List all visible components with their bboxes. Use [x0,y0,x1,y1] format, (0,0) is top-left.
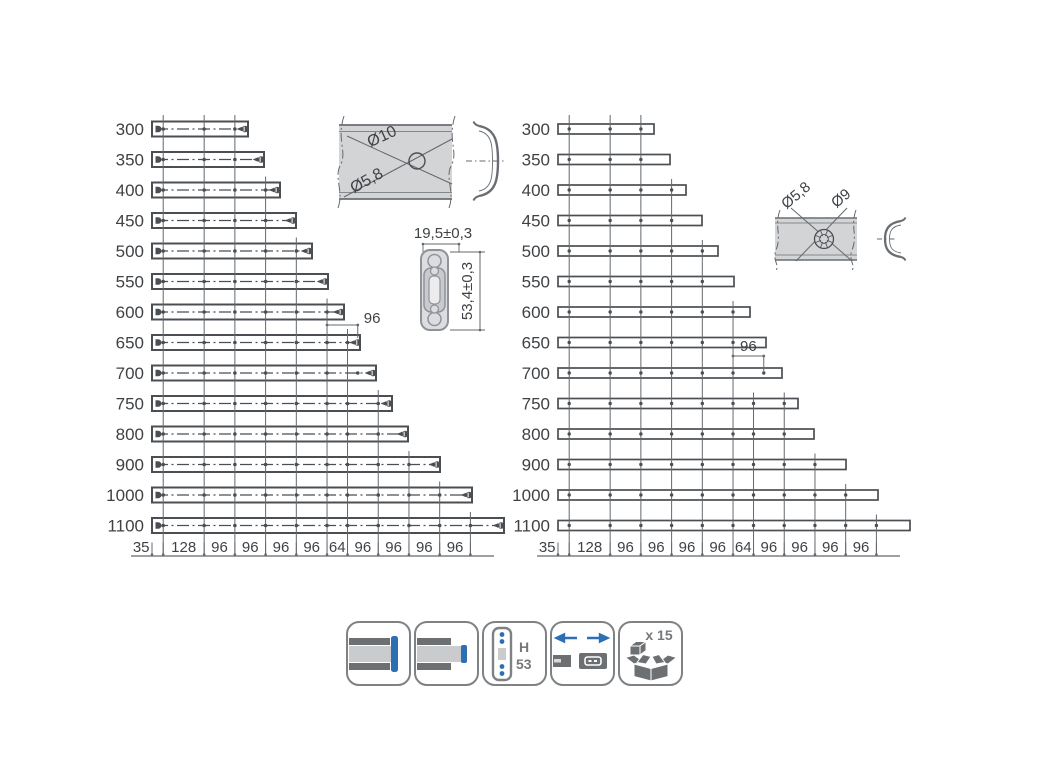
hole-dot [202,463,206,467]
length-label: 400 [522,181,550,200]
length-label: 600 [116,303,144,322]
hole-dot [783,493,786,496]
length-label: 700 [116,364,144,383]
length-label: 650 [522,334,550,353]
hole-dot [701,310,704,313]
length-label: 900 [116,456,144,475]
hole-dot [469,524,473,528]
hole-dot [325,402,329,406]
hole-dot [295,524,299,528]
hole-dot [608,371,611,374]
slide-bar-650 [558,338,766,348]
hole-dot [202,310,206,314]
hole-dot [264,493,268,497]
hole-dot [161,402,165,406]
hole-dot [608,310,611,313]
axis-label: 96 [273,539,290,556]
hole-dot [233,188,237,192]
hole-dot [295,402,299,406]
hole-dot [568,524,571,527]
hole-dot [295,432,299,436]
hole-dot [346,341,350,345]
hole-dot [731,432,734,435]
length-label: 550 [522,273,550,292]
hole-dot [701,249,704,252]
end-hole [386,400,393,407]
hole-dot [670,188,673,191]
hole-dot [639,432,642,435]
hole-dot [233,493,237,497]
hole-dot [670,493,673,496]
catalog-drawing-page: 3003504004505005506006507007508009001000… [0,0,1060,766]
length-label: 500 [522,242,550,261]
hole-dot [407,493,411,497]
hole-dot [568,249,571,252]
length-label: 600 [522,303,550,322]
hole-dot [407,463,411,467]
hole-dot [608,158,611,161]
length-label: 300 [116,120,144,139]
hole-dot [264,524,268,528]
hole-dot [568,219,571,222]
hole-dot [701,371,704,374]
hole-dot [295,310,299,314]
length-label: 800 [116,425,144,444]
hole-dot [202,524,206,528]
hole-dot [701,493,704,496]
hole-dot [701,402,704,405]
hole-dot [608,493,611,496]
slide-bar-400 [152,183,280,198]
length-label: 450 [522,212,550,231]
hole-dot [639,402,642,405]
hole-dot [568,371,571,374]
height-53-icon: H 53 [482,621,547,686]
length-label: 1000 [512,486,550,505]
length-label: 350 [116,151,144,170]
hole-dot [264,310,268,314]
hole-dot [202,371,206,375]
slide-bar-400 [558,185,686,195]
hole-dot [639,188,642,191]
hole-dot [639,310,642,313]
hole-dot [202,280,206,284]
profile-detail: 19,5±0,353,4±0,3 [414,225,485,331]
end-hole [322,278,329,285]
end-hole [498,522,505,529]
hole-dot [568,493,571,496]
hole-dot [233,402,237,406]
axis-label: 96 [416,539,433,556]
hole-dot [202,341,206,345]
length-label: 1100 [513,517,550,536]
hole-dot [264,341,268,345]
slide-bar-750 [558,399,798,409]
end-hole [242,126,249,133]
hole-dot [295,341,299,345]
hole-dot [568,158,571,161]
hole-dot [346,524,350,528]
hole-dot [264,188,268,192]
end-hole [354,339,361,346]
length-label: 650 [116,334,144,353]
hole-dot [325,463,329,467]
hole-dot [161,219,165,223]
hole-dot [376,524,380,528]
end-hole [338,309,345,316]
hole-dot [233,524,237,528]
slide-bar-800 [558,429,814,439]
hole-dot [438,524,442,528]
hole-dot [639,493,642,496]
end-hole [274,187,281,194]
hole-dot [233,432,237,436]
hole-dot [875,524,878,527]
end-hole [258,156,265,163]
length-label: 750 [116,395,144,414]
axis-label: 96 [679,539,696,556]
axis-label: 96 [853,539,870,556]
hole-dot [783,463,786,466]
length-label: 500 [116,242,144,261]
hole-dot [264,249,268,253]
hole-dot [202,188,206,192]
hole-dot [161,493,165,497]
partial-extension-icon [346,621,411,686]
hole-dot [701,341,704,344]
axis-label: 96 [355,539,372,556]
hole-dot [813,463,816,466]
length-label: 450 [116,212,144,231]
axis-label: 96 [791,539,808,556]
hole-dot [325,432,329,436]
hole-dot [752,524,755,527]
hole-dot [233,158,237,162]
hole-dot [731,493,734,496]
axis-label: 96 [822,539,839,556]
hole-dot [608,432,611,435]
hole-dot [376,493,380,497]
hole-dot [233,249,237,253]
hole-dot [701,524,704,527]
hole-dot [161,310,165,314]
hole-dot [161,341,165,345]
hole-dot [202,432,206,436]
hole-dot [608,341,611,344]
height-letter: H [519,639,529,655]
hole-dot [295,463,299,467]
slide-bar-600 [558,307,750,317]
hole-dot [813,493,816,496]
hole-detail-right: Ø5,8Ø9 [775,179,906,270]
hole-dot [161,127,165,131]
hole-dot [325,341,329,345]
hole-dot [844,493,847,496]
hole-dot [752,402,755,405]
hole-dot [608,188,611,191]
hole-dot [608,402,611,405]
hole-dot [639,249,642,252]
axis-label: 96 [211,539,228,556]
hole-dot [161,463,165,467]
hole-dot [813,524,816,527]
axis-label: 96 [617,539,634,556]
hole-dot [356,371,360,375]
length-label: 350 [522,151,550,170]
hole-dot [202,493,206,497]
axis-label: 96 [385,539,402,556]
hole-dot [202,158,206,162]
hole-dot [568,310,571,313]
hole-dot [376,402,380,406]
hole-dot [346,493,350,497]
hole-dot [376,463,380,467]
hole-dot [752,432,755,435]
hole-dot [670,280,673,283]
hole-dot [202,219,206,223]
end-hole [434,461,441,468]
hole-dot [762,371,765,374]
hole-dot [783,402,786,405]
hole-dot [264,463,268,467]
hole-dot [161,249,165,253]
length-label: 800 [522,425,550,444]
full-extension-icon [414,621,479,686]
hole-dot [161,188,165,192]
slide-bar-450 [558,216,702,226]
end-hole [370,370,377,377]
hole-dot [639,280,642,283]
width-dim-label: 19,5±0,3 [414,225,472,242]
hole-dot [670,219,673,222]
hole-dot [670,524,673,527]
hole-dot [731,463,734,466]
hole-dot [731,310,734,313]
quantity-label: x 15 [645,627,672,643]
hole-dot [844,524,847,527]
axis-label: 64 [735,539,752,556]
hole-dot [639,158,642,161]
hole-dot [325,371,329,375]
axis-label: 96 [242,539,259,556]
hole-dot [731,524,734,527]
axis-label: 128 [577,539,602,556]
length-label: 300 [522,120,550,139]
axis-label: 96 [648,539,665,556]
hole-dot [568,188,571,191]
hole-dot [346,432,350,436]
hole-dot [670,341,673,344]
height-dim-label: 53,4±0,3 [459,262,476,320]
hole-dot [670,402,673,405]
axis-label: 96 [761,539,778,556]
hole-dot [670,310,673,313]
hole-dot [295,371,299,375]
end-hole [466,492,473,499]
hole-dot [639,127,642,130]
hole-dot [670,432,673,435]
hole-dot [783,432,786,435]
hole-dot [608,524,611,527]
hole-dot [264,280,268,284]
hole-dot [670,249,673,252]
hole-dot [608,463,611,466]
hole-dot [346,402,350,406]
hole-dot [752,463,755,466]
length-label: 700 [522,364,550,383]
hole-dot [233,463,237,467]
hole-dot [161,158,165,162]
hole-dot [376,432,380,436]
hole-dot [701,432,704,435]
feature-icon-row: H 53 x 15 [346,621,683,686]
hole-dot [325,524,329,528]
hole-dot [568,127,571,130]
length-label: 400 [116,181,144,200]
hole-dot [233,219,237,223]
hole-dot [233,341,237,345]
end-hole [402,431,409,438]
hole-dot [264,432,268,436]
hole-dot [202,249,206,253]
axis-label: 96 [447,539,464,556]
hole-dot [295,493,299,497]
slide-bar-350 [558,155,670,165]
hole-dot [264,371,268,375]
hole-dot [731,341,734,344]
end-hole [306,248,313,255]
hole-dot [438,493,442,497]
hole-dot [568,402,571,405]
axis-label: 35 [539,539,556,556]
hole-dot [161,524,165,528]
hole-dot [233,280,237,284]
drawer-member-panel: 3003504004505005506006507007508009001000… [512,115,910,556]
hole-detail-top: Ø10Ø5,8 [338,116,504,208]
hole-dot [783,524,786,527]
hole-dot [233,127,237,131]
axis-label: 35 [133,539,150,556]
hole-dot [568,432,571,435]
hole-dot [161,371,165,375]
hole-dot [639,219,642,222]
hole-dot [608,127,611,130]
hole-dot [701,280,704,283]
slide-bar-550 [558,277,734,287]
hole-dot [639,524,642,527]
hole-dot [608,249,611,252]
length-label: 1000 [106,486,144,505]
hole-dot [568,280,571,283]
hole-dot [161,280,165,284]
slide-bar-1000 [558,490,878,500]
length-label: 1100 [107,517,144,536]
hole-dot [731,371,734,374]
axis-label: 96 [303,539,320,556]
slide-bar-500 [558,246,718,256]
axis-label: 128 [171,539,196,556]
hole-dot [608,280,611,283]
axis-label: 96 [709,539,726,556]
hole-dot [161,432,165,436]
hole-dot [295,249,299,253]
separable-rails-icon [550,621,615,686]
dia-9-label: Ø9 [828,186,854,212]
hole-dot [639,341,642,344]
dia-5-8-label: Ø5,8 [778,179,814,213]
hole-dot [233,371,237,375]
hole-dot [608,219,611,222]
length-label: 750 [522,395,550,414]
hole-dot [264,402,268,406]
axis-label: 64 [329,539,346,556]
hole-dot [346,463,350,467]
length-label: 900 [522,456,550,475]
hole-dot [325,493,329,497]
end-hole [290,217,297,224]
dim-96-label: 96 [740,338,757,355]
hole-dot [639,371,642,374]
hole-dot [325,310,329,314]
hole-dot [639,463,642,466]
height-value: 53 [516,656,532,672]
hole-dot [670,371,673,374]
hole-dot [731,402,734,405]
hole-dot [568,463,571,466]
hole-dot [295,280,299,284]
hole-dot [264,219,268,223]
hole-dot [233,310,237,314]
hole-dot [670,463,673,466]
packaging-quantity-icon: x 15 [618,621,683,686]
dim-96-label: 96 [364,310,381,327]
hole-dot [407,524,411,528]
hole-dot [568,341,571,344]
hole-dot [202,402,206,406]
hole-dot [752,493,755,496]
length-label: 550 [116,273,144,292]
hole-dot [202,127,206,131]
hole-dot [701,463,704,466]
